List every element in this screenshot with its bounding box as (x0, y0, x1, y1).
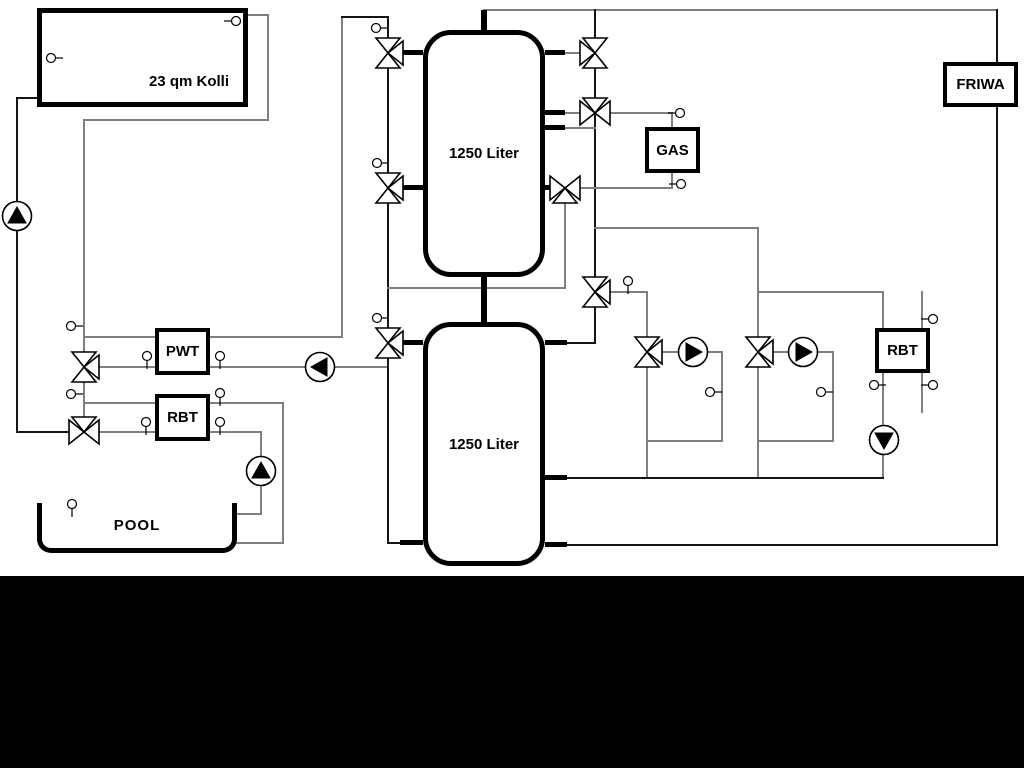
pipe-segment (882, 291, 884, 329)
pipe-segment (594, 291, 648, 293)
tank-port-stub (545, 542, 567, 547)
temperature-sensor-icon (67, 390, 76, 399)
temperature-sensor-icon (676, 109, 685, 118)
pipe-segment (566, 544, 998, 546)
pipe-segment (387, 287, 566, 289)
tank-port-stub (545, 475, 567, 480)
pool-basin: POOL (37, 503, 237, 553)
pipe-segment (566, 342, 596, 344)
three-way-valve-icon (635, 337, 659, 352)
buffer-tank-bottom: 1250 Liter (423, 322, 545, 566)
temperature-sensor-icon (67, 322, 76, 331)
footer-black-bar (0, 576, 1024, 768)
buffer-tank-top-label: 1250 Liter (449, 145, 519, 162)
temperature-sensor-icon (817, 388, 826, 397)
pipe-segment (661, 351, 723, 353)
pipe-segment (267, 14, 269, 121)
pipe-segment (341, 16, 343, 338)
pipe-segment (387, 16, 389, 544)
temperature-sensor-icon (706, 388, 715, 397)
buffer-tank-bottom-label: 1250 Liter (449, 436, 519, 453)
tank-port-stub (545, 50, 565, 55)
tank-port-stub (481, 10, 487, 31)
three-way-valve-icon (580, 101, 595, 125)
temperature-sensor-icon (142, 418, 151, 427)
three-way-valve-icon (595, 101, 610, 125)
three-way-valve-icon (72, 417, 96, 432)
rbt-left-box: RBT (155, 394, 210, 441)
pipe-segment (209, 431, 262, 433)
pipe-segment (566, 477, 884, 479)
three-way-valve-icon (84, 420, 99, 444)
solar-collector-box: 23 qm Kolli (37, 8, 248, 107)
pipe-segment (564, 202, 566, 289)
pipe-segment (671, 112, 673, 128)
tank-port-stub (481, 276, 487, 323)
pipe-segment (83, 119, 269, 121)
tank-port-stub (403, 185, 423, 190)
temperature-sensor-icon (372, 24, 381, 33)
pipe-segment (341, 16, 389, 18)
three-way-valve-icon (69, 420, 84, 444)
pipe-segment (757, 440, 834, 442)
gas-boiler-box: GAS (645, 127, 700, 173)
pipe-segment (98, 366, 156, 368)
pipe-segment (260, 431, 262, 515)
pipe-segment (594, 306, 596, 344)
pipe-segment (832, 351, 834, 442)
solar-collector-label: 23 qm Kolli (149, 73, 229, 90)
pipe-segment (564, 112, 581, 114)
three-way-valve-icon (746, 352, 770, 367)
hydraulic-schematic: 23 qm Kolli 1250 Liter 1250 Liter PWT RB… (0, 0, 1024, 768)
rbt-left-label: RBT (167, 409, 198, 426)
pipe-segment (564, 127, 596, 129)
pipe-segment (98, 431, 156, 433)
tank-port-stub (545, 340, 567, 345)
pipe-segment (16, 97, 38, 99)
tank-port-stub (545, 185, 551, 190)
pipe-segment (646, 440, 723, 442)
temperature-sensor-icon (624, 277, 633, 286)
rbt-right-box: RBT (875, 328, 930, 373)
pipe-segment (236, 542, 284, 544)
three-way-valve-icon (580, 41, 595, 65)
pipe-segment (594, 9, 596, 278)
pipe-segment (646, 291, 648, 338)
pipe-segment (209, 366, 389, 368)
three-way-valve-icon (388, 41, 403, 65)
temperature-sensor-icon (216, 418, 225, 427)
pipe-segment (721, 351, 723, 442)
pwt-label: PWT (166, 343, 199, 360)
tank-port-stub (403, 340, 423, 345)
three-way-valve-icon (553, 188, 577, 203)
pwt-heat-exchanger-box: PWT (155, 328, 210, 375)
pipe-segment (757, 227, 759, 338)
pipe-segment (757, 366, 759, 479)
pipe-segment (646, 366, 648, 479)
pipe-segment (594, 227, 759, 229)
pipe-segment (83, 119, 85, 418)
tank-port-stub (403, 50, 423, 55)
three-way-valve-icon (388, 331, 403, 355)
pipe-segment (882, 372, 884, 479)
three-way-valve-icon (550, 176, 565, 200)
pipe-segment (236, 513, 262, 515)
three-way-valve-icon (758, 340, 773, 364)
pipe-segment (579, 187, 673, 189)
friwa-station-box: FRIWA (943, 62, 1018, 107)
pipe-segment (483, 9, 998, 11)
pipe-segment (671, 172, 673, 189)
temperature-sensor-icon (216, 352, 225, 361)
three-way-valve-icon (583, 277, 607, 292)
temperature-sensor-icon (373, 314, 382, 323)
temperature-sensor-icon (216, 389, 225, 398)
pipe-segment (16, 431, 70, 433)
buffer-tank-top: 1250 Liter (423, 30, 545, 277)
temperature-sensor-icon (929, 315, 938, 324)
three-way-valve-icon (583, 292, 607, 307)
temperature-sensor-icon (143, 352, 152, 361)
pump-icon (870, 426, 899, 455)
pipe-segment (282, 402, 284, 544)
temperature-sensor-icon (677, 180, 686, 189)
three-way-valve-icon (388, 176, 403, 200)
three-way-valve-icon (565, 176, 580, 200)
tank-port-stub (545, 125, 565, 130)
pipe-segment (757, 291, 884, 293)
three-way-valve-icon (635, 352, 659, 367)
pipe-segment (83, 336, 343, 338)
three-way-valve-icon (746, 337, 770, 352)
temperature-sensor-icon (929, 381, 938, 390)
tank-port-stub (400, 540, 423, 545)
pump-direction-triangle (875, 433, 893, 449)
rbt-right-label: RBT (887, 342, 918, 359)
pipe-segment (16, 97, 18, 433)
friwa-label: FRIWA (956, 76, 1004, 93)
pipe-segment (772, 351, 834, 353)
gas-boiler-label: GAS (656, 142, 689, 159)
pipe-segment (247, 14, 269, 16)
pool-label: POOL (114, 517, 161, 534)
three-way-valve-icon (647, 340, 662, 364)
temperature-sensor-icon (870, 381, 879, 390)
three-way-valve-icon (84, 355, 99, 379)
temperature-sensor-icon (373, 159, 382, 168)
pipe-segment (564, 52, 581, 54)
tank-port-stub (545, 110, 565, 115)
pipe-segment (609, 112, 673, 114)
